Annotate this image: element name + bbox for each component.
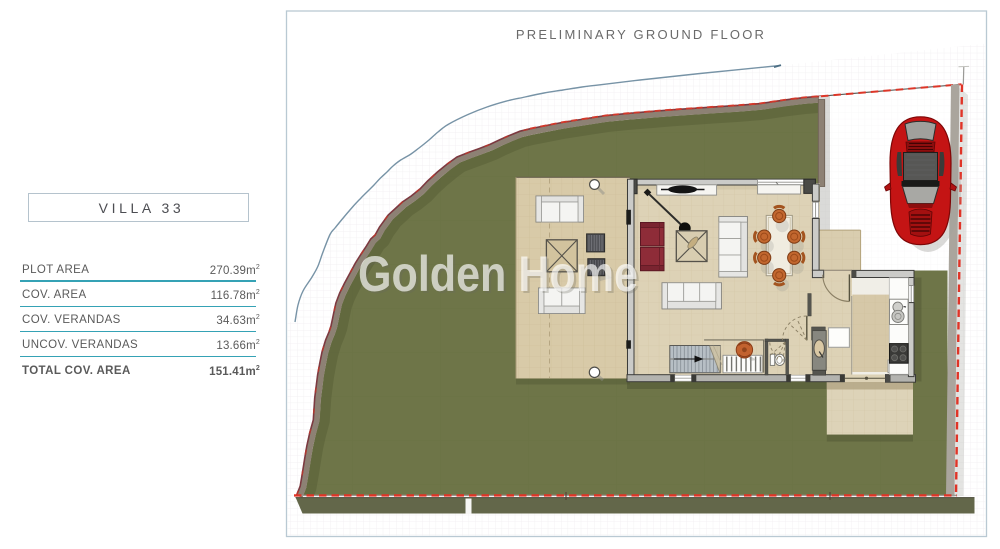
svg-text:Golden Home: Golden Home bbox=[358, 246, 638, 302]
